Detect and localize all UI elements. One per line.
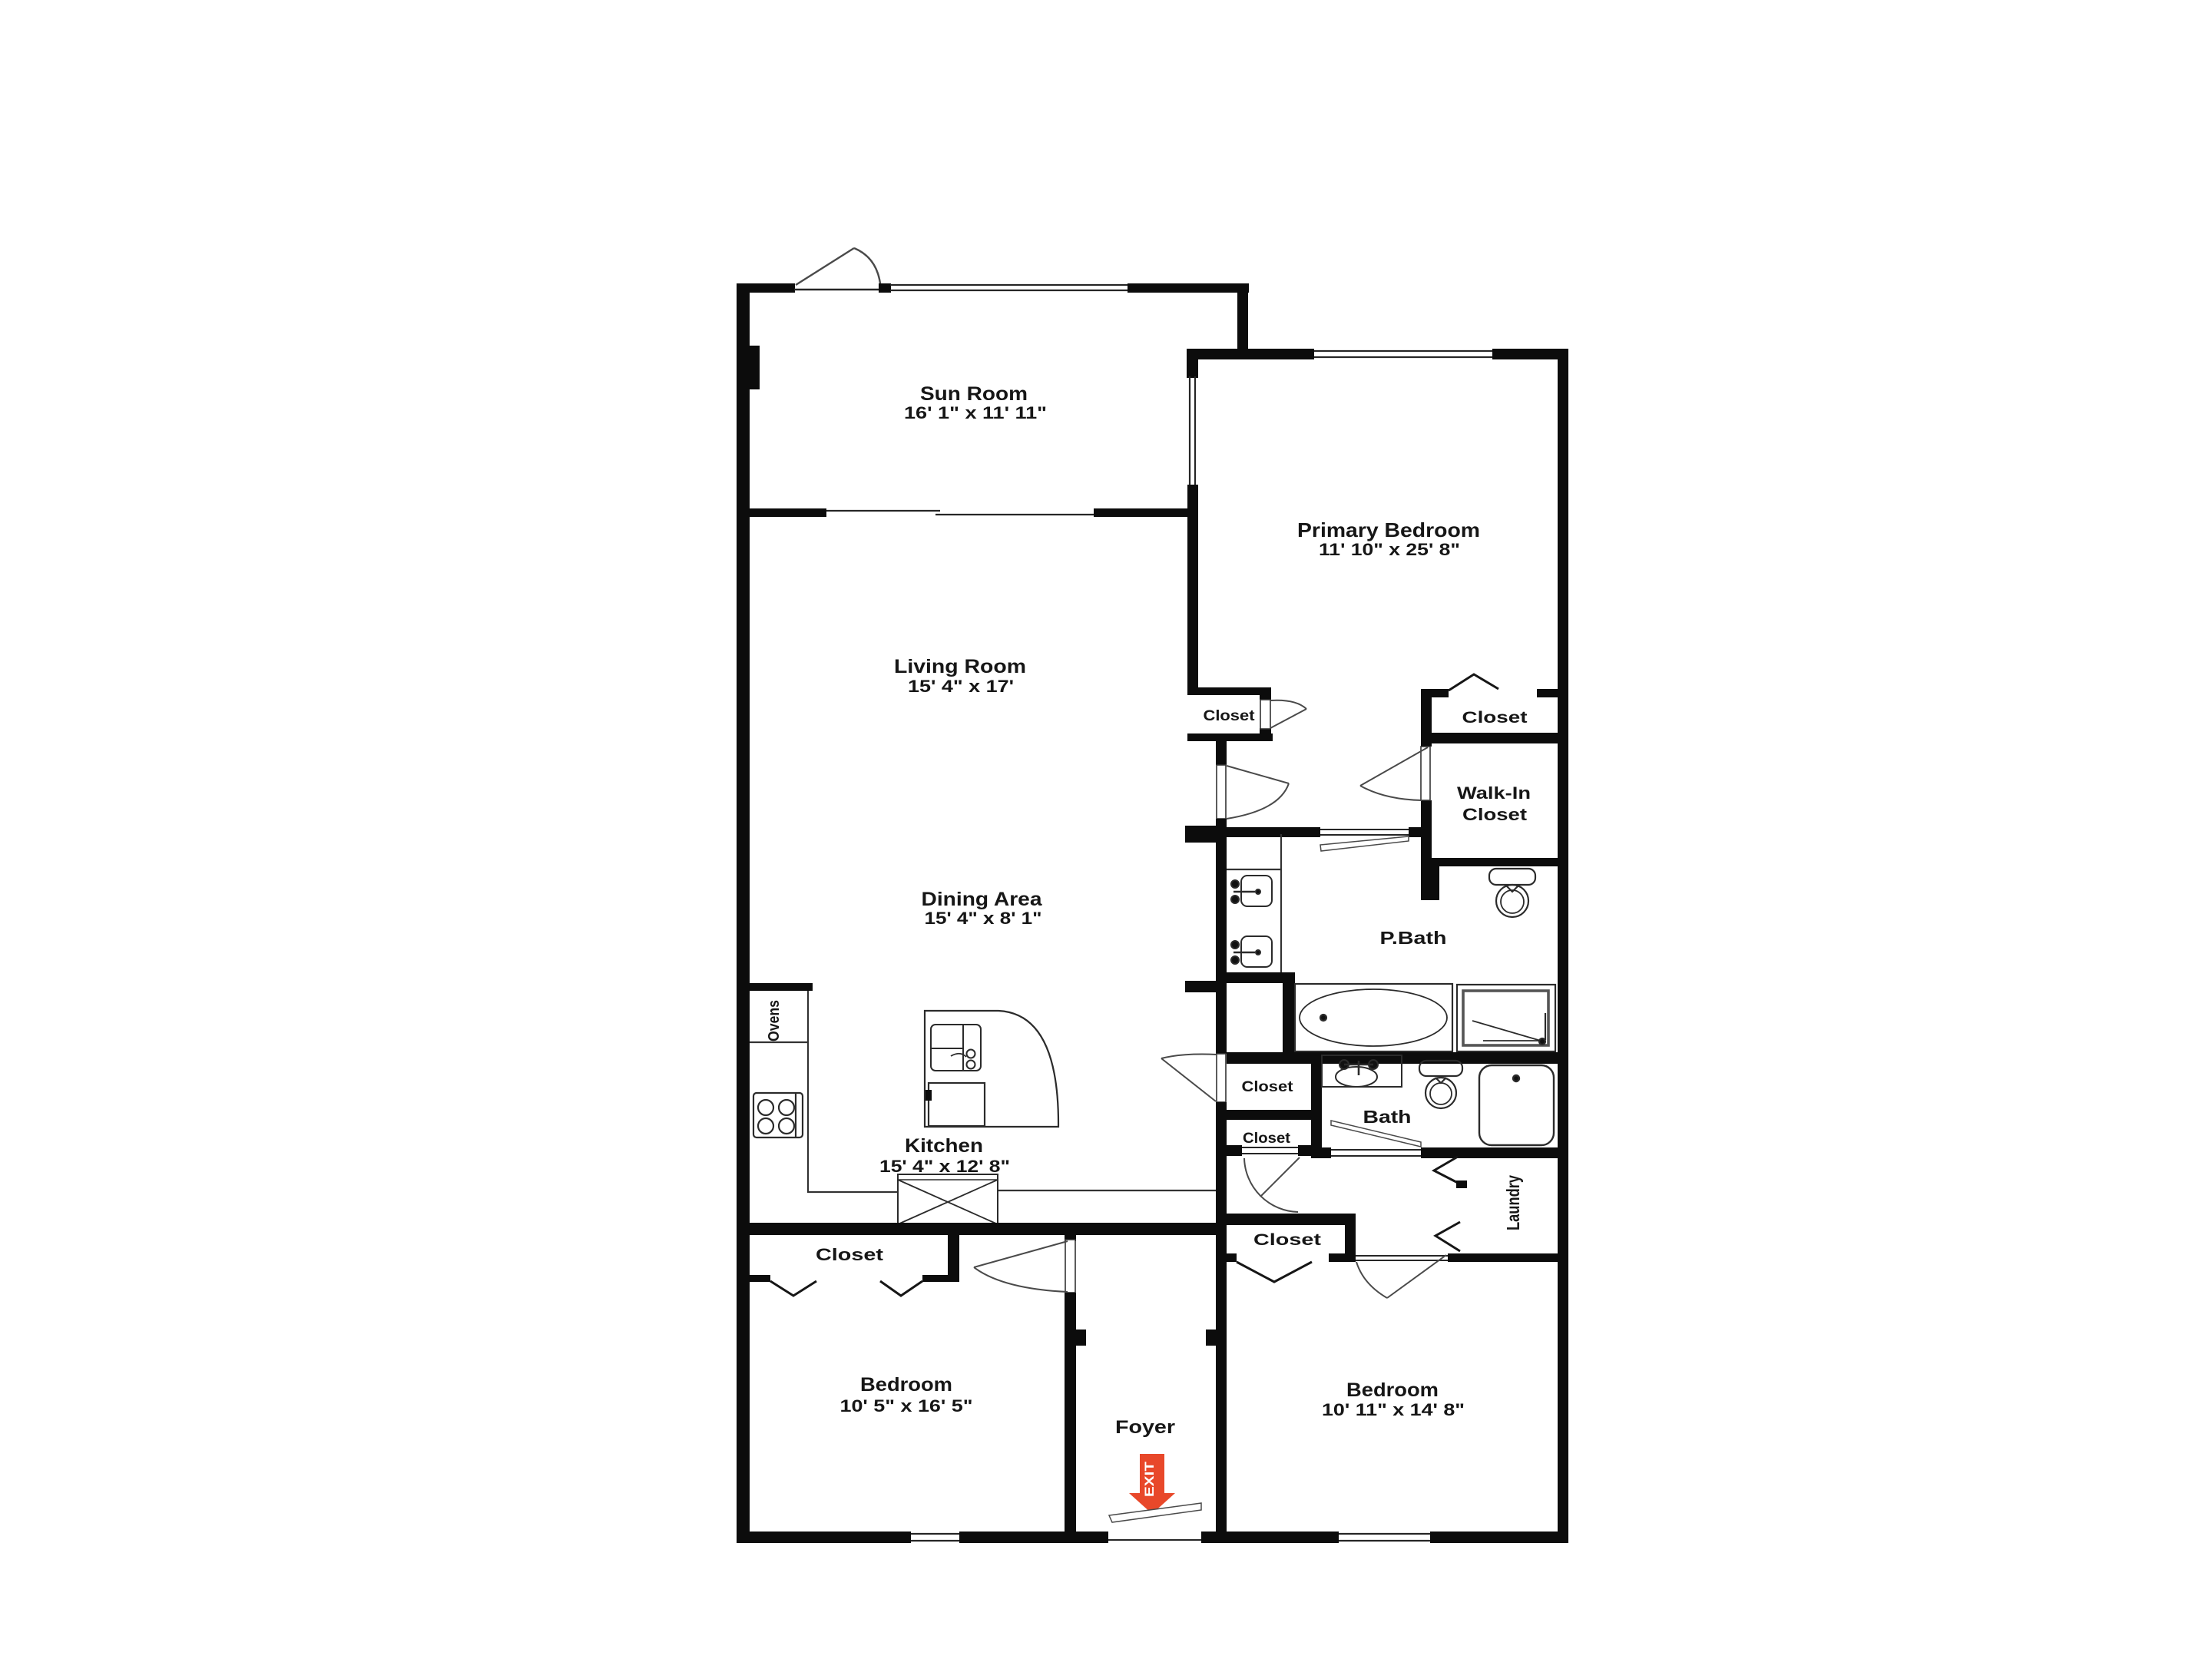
svg-text:Bedroom: Bedroom <box>1346 1379 1439 1401</box>
svg-text:Walk-In: Walk-In <box>1457 783 1531 803</box>
svg-text:EXIT: EXIT <box>1142 1461 1157 1497</box>
svg-text:P.Bath: P.Bath <box>1380 928 1447 948</box>
svg-text:Sun Room: Sun Room <box>920 383 1028 405</box>
svg-text:Bath: Bath <box>1363 1107 1412 1127</box>
svg-text:15' 4" x 8' 1": 15' 4" x 8' 1" <box>925 909 1042 928</box>
svg-text:11' 10" x 25' 8": 11' 10" x 25' 8" <box>1319 540 1460 559</box>
svg-text:Laundry: Laundry <box>1503 1175 1523 1230</box>
svg-text:Closet: Closet <box>1462 709 1528 727</box>
svg-text:10' 5" x 16' 5": 10' 5" x 16' 5" <box>840 1396 973 1416</box>
svg-text:Ovens: Ovens <box>766 1000 783 1041</box>
svg-text:Dining Area: Dining Area <box>922 889 1043 910</box>
svg-text:15' 4" x 17': 15' 4" x 17' <box>908 677 1014 696</box>
svg-text:Kitchen: Kitchen <box>905 1135 983 1157</box>
svg-text:16' 1" x 11' 11": 16' 1" x 11' 11" <box>904 403 1047 422</box>
svg-text:Closet: Closet <box>1242 1079 1294 1095</box>
svg-text:Bedroom: Bedroom <box>860 1374 952 1396</box>
svg-text:Foyer: Foyer <box>1115 1417 1175 1438</box>
svg-text:10' 11" x 14' 8": 10' 11" x 14' 8" <box>1322 1400 1465 1419</box>
svg-text:15' 4" x 12' 8": 15' 4" x 12' 8" <box>879 1157 1010 1176</box>
svg-text:Closet: Closet <box>1253 1231 1321 1249</box>
svg-text:Closet: Closet <box>816 1245 884 1264</box>
svg-text:Living Room: Living Room <box>894 656 1026 677</box>
svg-text:Primary Bedroom: Primary Bedroom <box>1297 518 1480 541</box>
svg-text:Closet: Closet <box>1462 805 1528 824</box>
svg-text:Closet: Closet <box>1243 1131 1291 1147</box>
svg-text:Closet: Closet <box>1204 708 1256 724</box>
